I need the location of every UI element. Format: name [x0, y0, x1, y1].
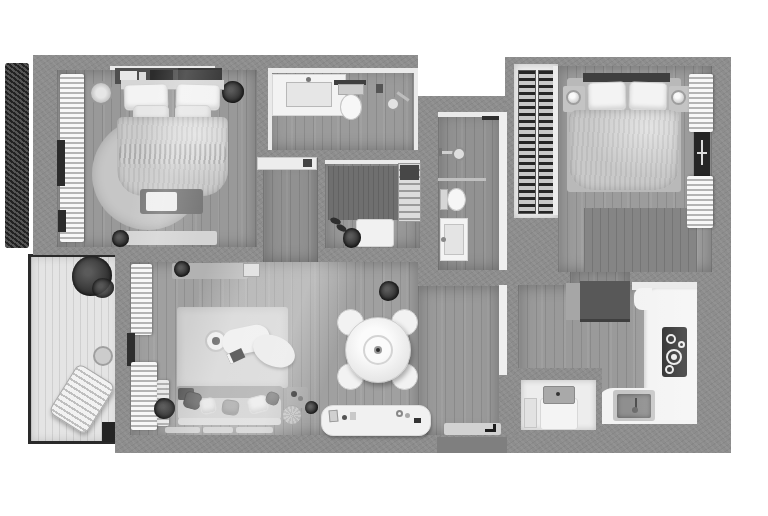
- floor-plan-canvas: [0, 0, 768, 516]
- entry-door: [437, 437, 507, 453]
- entry: [0, 0, 768, 516]
- doormat-arrow-v: [493, 424, 496, 432]
